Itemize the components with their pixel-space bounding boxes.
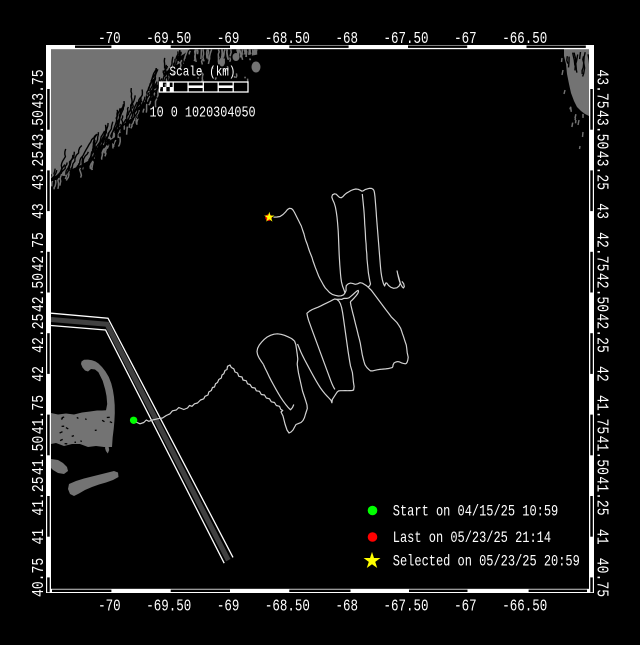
svg-text:42.50: 42.50 — [29, 273, 49, 312]
svg-text:-70: -70 — [98, 31, 120, 49]
svg-text:43.75: 43.75 — [592, 69, 612, 108]
svg-text:40.75: 40.75 — [29, 558, 49, 597]
svg-text:-69: -69 — [217, 598, 239, 616]
svg-text:-67: -67 — [454, 31, 476, 49]
svg-text:42.25: 42.25 — [592, 314, 612, 353]
svg-text:42.75: 42.75 — [29, 232, 49, 271]
svg-text:42: 42 — [592, 366, 612, 382]
svg-text:43.50: 43.50 — [29, 110, 49, 149]
svg-text:-66.50: -66.50 — [502, 598, 547, 616]
svg-text:Selected on 05/23/25 20:59: Selected on 05/23/25 20:59 — [393, 553, 580, 571]
svg-text:41.25: 41.25 — [29, 476, 49, 515]
svg-text:-68.50: -68.50 — [265, 31, 310, 49]
svg-text:41.75: 41.75 — [592, 395, 612, 434]
svg-text:43.50: 43.50 — [592, 110, 612, 149]
svg-text:-68: -68 — [335, 31, 357, 49]
svg-text:43: 43 — [29, 203, 49, 219]
svg-text:-67.50: -67.50 — [384, 31, 429, 49]
svg-text:41: 41 — [592, 529, 612, 545]
svg-text:-67.50: -67.50 — [384, 598, 429, 616]
svg-text:Last on 05/23/25 21:14: Last on 05/23/25 21:14 — [393, 530, 551, 548]
svg-text:42.50: 42.50 — [592, 273, 612, 312]
svg-text:43.25: 43.25 — [29, 151, 49, 190]
svg-text:10 0 1020304050: 10 0 1020304050 — [150, 105, 256, 122]
svg-text:42.25: 42.25 — [29, 314, 49, 353]
svg-text:41.50: 41.50 — [29, 436, 49, 475]
svg-text:-69.50: -69.50 — [146, 598, 191, 616]
svg-text:41.50: 41.50 — [592, 436, 612, 475]
svg-text:Scale (km): Scale (km) — [170, 64, 236, 79]
svg-text:41.25: 41.25 — [592, 476, 612, 515]
svg-text:-68: -68 — [335, 598, 357, 616]
svg-text:43.75: 43.75 — [29, 69, 49, 108]
svg-text:-69: -69 — [217, 31, 239, 49]
svg-text:-69.50: -69.50 — [146, 31, 191, 49]
svg-text:-70: -70 — [98, 598, 120, 616]
svg-text:40.75: 40.75 — [592, 558, 612, 597]
svg-text:-68.50: -68.50 — [265, 598, 310, 616]
svg-text:41.75: 41.75 — [29, 395, 49, 434]
svg-text:43.25: 43.25 — [592, 151, 612, 190]
svg-text:-66.50: -66.50 — [502, 31, 547, 49]
svg-text:42: 42 — [29, 366, 49, 382]
svg-text:43: 43 — [592, 203, 612, 219]
svg-text:Start on 04/15/25 10:59: Start on 04/15/25 10:59 — [393, 503, 558, 521]
svg-text:-67: -67 — [454, 598, 476, 616]
svg-text:42.75: 42.75 — [592, 232, 612, 271]
svg-text:41: 41 — [29, 529, 49, 545]
